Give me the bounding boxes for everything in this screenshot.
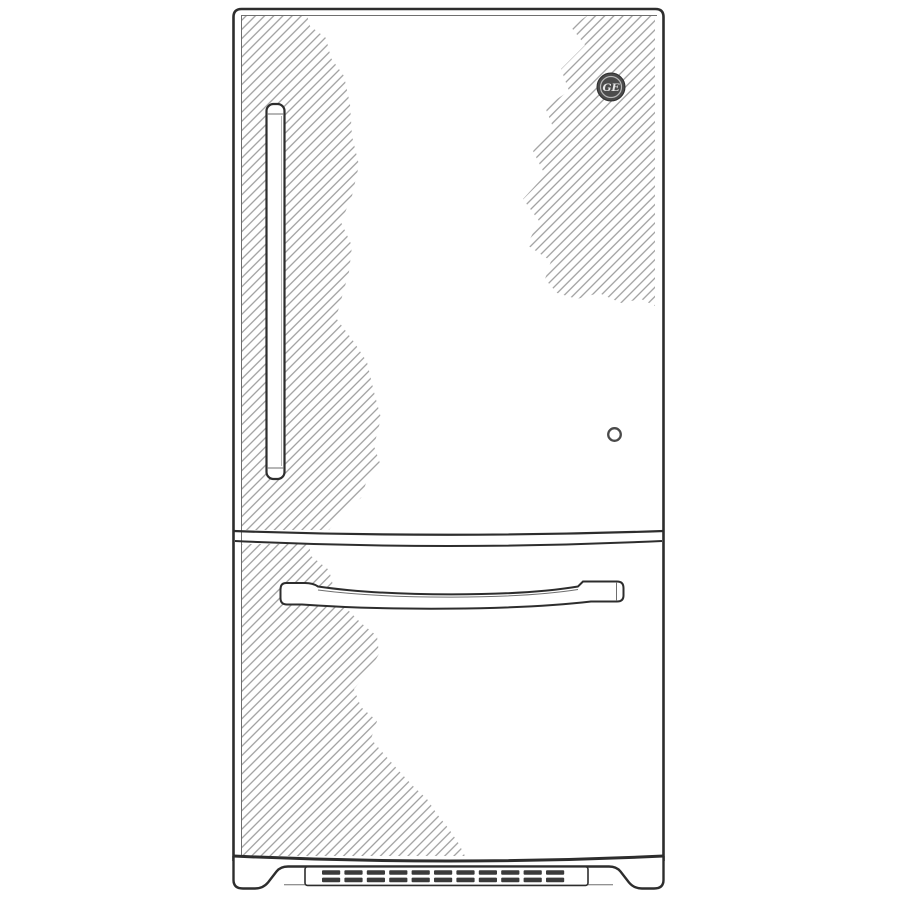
grille-slat xyxy=(367,870,385,875)
grille-slat xyxy=(479,878,497,883)
door-indicator-circle xyxy=(608,428,621,441)
ge-logo-text: GE xyxy=(603,82,621,94)
grille-slat xyxy=(434,878,452,883)
grille-slat xyxy=(434,870,452,875)
grille-slat xyxy=(524,878,542,883)
grille-slat xyxy=(456,870,474,875)
vent-grille-panel xyxy=(305,867,588,886)
grille-slat xyxy=(524,870,542,875)
grille-slat xyxy=(344,878,362,883)
grille-slat xyxy=(322,878,340,883)
grille-slat xyxy=(412,870,430,875)
grille-slat xyxy=(412,878,430,883)
grille-slat xyxy=(389,878,407,883)
grille-slat xyxy=(389,870,407,875)
grille-slat xyxy=(322,870,340,875)
grille-slat xyxy=(546,870,564,875)
grille-slat xyxy=(546,878,564,883)
ge-logo: GE xyxy=(597,73,625,101)
fridge-door-handle xyxy=(267,104,285,479)
grille-slat xyxy=(344,870,362,875)
status-indicator xyxy=(608,428,621,441)
grille-slat xyxy=(479,870,497,875)
grille-slat xyxy=(501,870,519,875)
vent-grille xyxy=(305,867,588,886)
grille-slat xyxy=(367,878,385,883)
refrigerator-illustration: GE xyxy=(0,0,900,900)
grille-slat xyxy=(456,878,474,883)
grille-slat xyxy=(501,878,519,883)
